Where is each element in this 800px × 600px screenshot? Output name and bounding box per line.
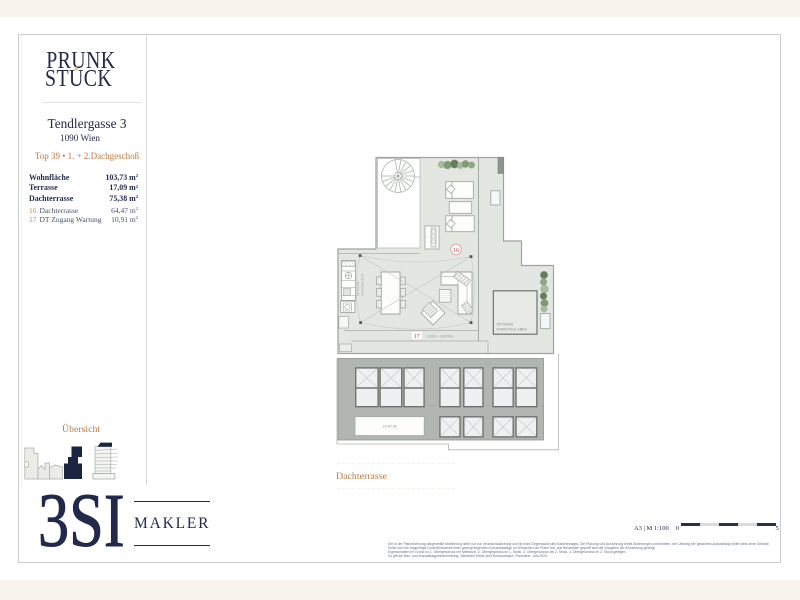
svg-text:17: 17 [414, 334, 420, 340]
svg-text:WHIRLPOOL AREA: WHIRLPOOL AREA [497, 328, 528, 332]
svg-text:OPTIONAL: OPTIONAL [497, 323, 514, 327]
svg-text:OPTIONAL: OPTIONAL [356, 280, 360, 296]
svg-text:LICHT 05: LICHT 05 [383, 425, 397, 429]
svg-text:16: 16 [453, 248, 459, 254]
svg-text:LIVING + SEATING: LIVING + SEATING [426, 334, 454, 338]
svg-text:AUSSENKÜCHE: AUSSENKÜCHE [361, 273, 365, 296]
